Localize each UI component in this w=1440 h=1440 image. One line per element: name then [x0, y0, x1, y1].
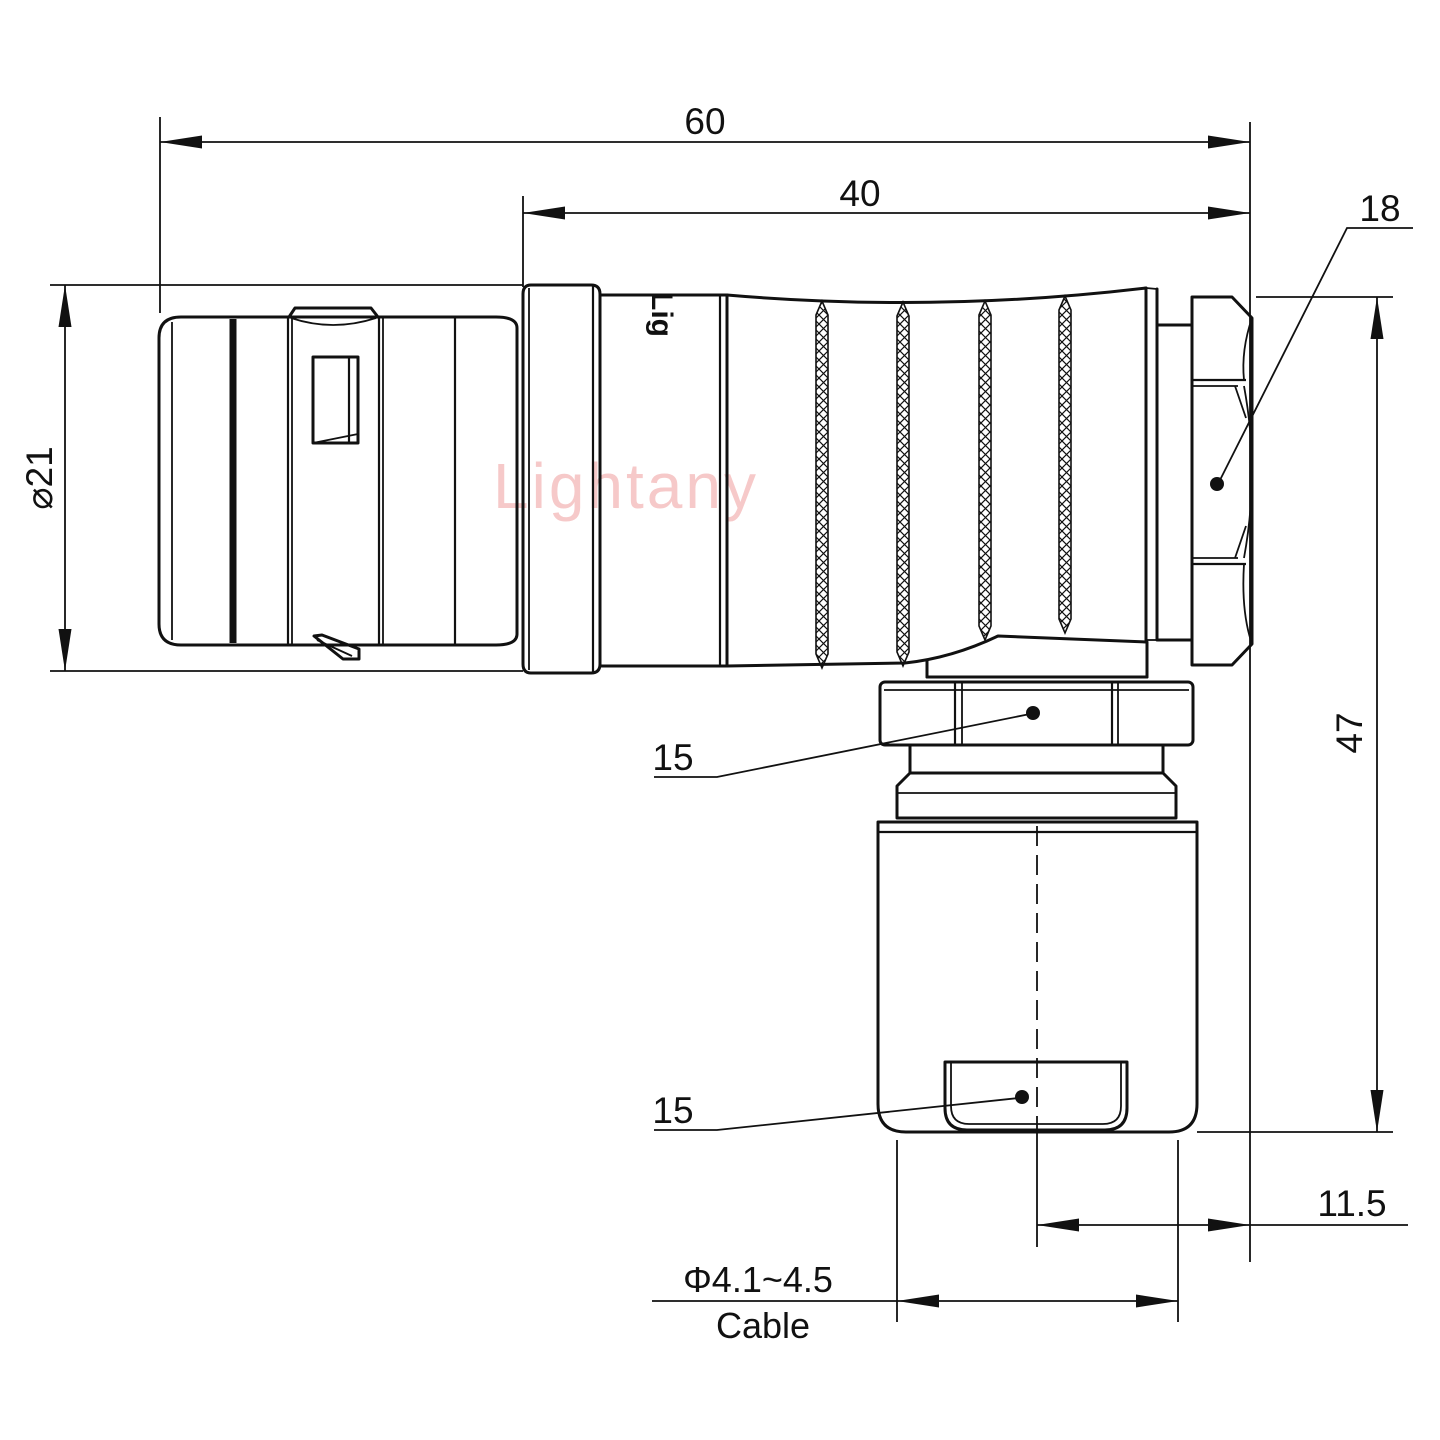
- arrowhead: [59, 285, 72, 327]
- elbow-housing: [927, 642, 1147, 677]
- arrowhead: [1037, 1219, 1079, 1232]
- arrowhead: [523, 207, 565, 220]
- leader-18: 18: [1210, 188, 1413, 491]
- knurled-grip: [727, 288, 1157, 668]
- dimension-40: 40: [523, 173, 1250, 220]
- connector-drawing: Lightany Lig: [0, 0, 1440, 1440]
- arrowhead: [1371, 1090, 1384, 1132]
- front-plug-outline: [159, 317, 517, 645]
- dim-15-upper-label: 15: [652, 737, 693, 778]
- grip-top-edge: [727, 288, 1146, 303]
- knurl-band: [816, 301, 828, 668]
- strain-relief-steps: [897, 745, 1176, 818]
- knurl-band: [897, 302, 909, 666]
- dim-18-label: 18: [1359, 188, 1400, 229]
- arrowhead: [1136, 1295, 1178, 1308]
- back-nut: [1158, 297, 1252, 665]
- shell-marking-text: Lig: [645, 292, 678, 337]
- knurl-band: [979, 301, 991, 640]
- crimp-barrel: [878, 822, 1197, 1247]
- dim-40-label: 40: [839, 173, 880, 214]
- leader-dot: [1015, 1090, 1029, 1104]
- technical-drawing-page: Lightany Lig: [0, 0, 1440, 1440]
- arrowhead: [897, 1295, 939, 1308]
- knurl-band: [1059, 296, 1071, 633]
- arrowhead: [59, 629, 72, 671]
- dimension-47: 47: [1329, 297, 1384, 1132]
- dim-11-5-label: 11.5: [1317, 1183, 1386, 1224]
- leader-dot: [1026, 706, 1040, 720]
- step-flange: [897, 773, 1176, 818]
- leader-line-18: [1219, 228, 1413, 482]
- arrowhead: [1208, 136, 1250, 149]
- dimension-dia21: ⌀21: [19, 285, 72, 671]
- step-neck: [910, 745, 1163, 773]
- dim-47-label: 47: [1329, 712, 1370, 753]
- cable-diameter-label: Φ4.1~4.5: [683, 1259, 833, 1300]
- arrowhead: [160, 136, 202, 149]
- crimp-window-inner: [951, 1062, 1121, 1124]
- dim-60-label: 60: [684, 101, 725, 142]
- nut-chamfer-line: [1235, 386, 1246, 558]
- dimension-60: 60: [160, 101, 1250, 149]
- grip-end-cap-top: [1146, 288, 1157, 289]
- leader-15-upper: 15: [652, 706, 1040, 778]
- dim-dia21-label: ⌀21: [19, 446, 60, 509]
- dimension-11-5: 11.5: [1037, 1183, 1408, 1232]
- dim-15-lower-label: 15: [652, 1090, 693, 1131]
- cable-label: Cable: [716, 1305, 810, 1346]
- arrowhead: [1208, 1219, 1250, 1232]
- dimension-cable: Φ4.1~4.5 Cable: [652, 1259, 1178, 1346]
- crimp-window-outer: [945, 1062, 1127, 1130]
- leader-dot: [1210, 477, 1224, 491]
- leader-line-15-lower: [654, 1098, 1019, 1130]
- arrowhead: [1371, 297, 1384, 339]
- front-plug: [159, 308, 517, 659]
- arrowhead: [1208, 207, 1250, 220]
- top-key-arc: [291, 318, 376, 325]
- grip-bottom-edge: [727, 636, 1146, 666]
- keyway-window: [313, 357, 358, 443]
